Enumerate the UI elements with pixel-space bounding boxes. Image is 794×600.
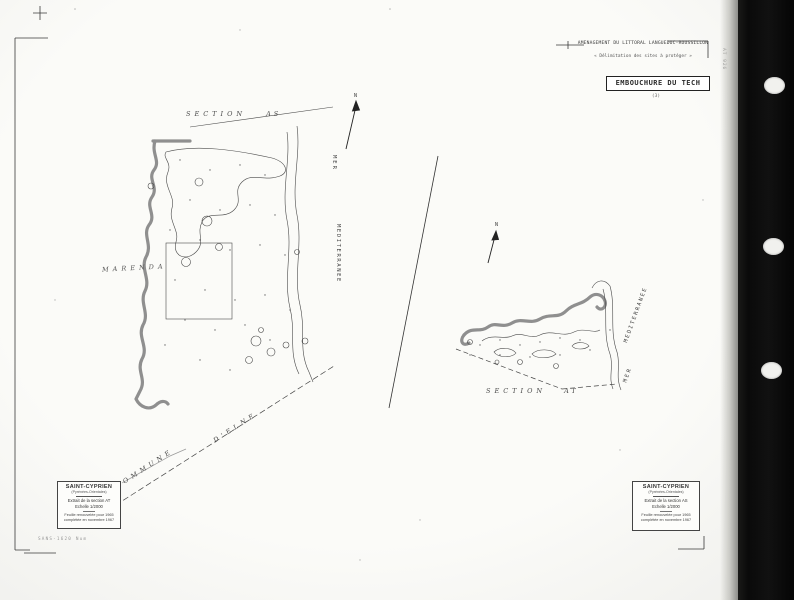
scan-speckles — [54, 8, 703, 561]
sheet-number: (3) — [646, 94, 666, 99]
punch-hole — [764, 77, 785, 94]
right-map-contours — [468, 281, 622, 390]
right-section-word: SECTION — [486, 387, 546, 395]
sheet-divider-line — [389, 156, 438, 408]
cartouche-left-note2: complétée en novembre 1967 — [59, 518, 119, 523]
left-section-label: SECTION AS — [186, 110, 281, 118]
binder-strip — [738, 0, 794, 600]
punch-hole — [761, 362, 782, 379]
left-section-value: AS — [266, 110, 281, 118]
punch-hole — [763, 238, 784, 255]
right-north-label: N — [495, 222, 498, 228]
left-sea-word2: MEDITERRANEE — [335, 224, 341, 283]
header-line2: « Délimitation des sites à protéger » — [585, 54, 701, 59]
scan-shadow-band — [720, 0, 738, 600]
north-arrow-right — [488, 231, 499, 263]
divider — [653, 496, 679, 497]
left-sea-word1: MER — [331, 155, 337, 171]
left-north-label: N — [354, 93, 357, 99]
cartouche-right: SAINT-CYPRIEN (Pyrénées-Orientales) Extr… — [632, 481, 700, 531]
divider — [76, 496, 102, 497]
cartouche-left-scale: Echelle 1/2000 — [59, 504, 119, 510]
cartouche-right-note2: complétée en novembre 1967 — [634, 518, 698, 523]
divider — [660, 511, 672, 512]
right-map-dashed-limits — [456, 349, 617, 389]
cartouche-left-extract: Extrait de la section AT — [59, 498, 119, 504]
left-map-contours — [148, 107, 333, 382]
header-line1: AMENAGEMENT DU LITTORAL LANGUEDOC-ROUSSI… — [575, 41, 711, 46]
left-map-site-boundary — [136, 141, 190, 408]
parcel-marks — [164, 159, 610, 370]
right-map-site-boundary — [462, 294, 606, 344]
cartouche-right-scale: Echelle 1/2000 — [634, 504, 698, 510]
frame-marks — [15, 6, 708, 553]
right-section-value: AT — [564, 387, 579, 395]
left-section-word: SECTION — [186, 110, 246, 118]
cartouche-right-note1: Feuille renouvelée pour 1965 — [634, 513, 698, 518]
cartouche-left-departement: (Pyrénées-Orientales) — [59, 490, 119, 494]
right-section-label: SECTION AT — [486, 387, 579, 395]
north-arrow-left — [346, 101, 360, 149]
divider — [83, 511, 95, 512]
cartouche-left-note1: Feuille renouvelée pour 1965 — [59, 513, 119, 518]
scanned-map-page: AMENAGEMENT DU LITTORAL LANGUEDOC-ROUSSI… — [0, 0, 794, 600]
archive-reference: SANS-1620 Num — [38, 537, 87, 542]
cartouche-right-departement: (Pyrénées-Orientales) — [634, 490, 698, 494]
map-title: EMBOUCHURE DU TECH — [606, 76, 710, 91]
cartouche-left: SAINT-CYPRIEN (Pyrénées-Orientales) Extr… — [57, 481, 121, 529]
